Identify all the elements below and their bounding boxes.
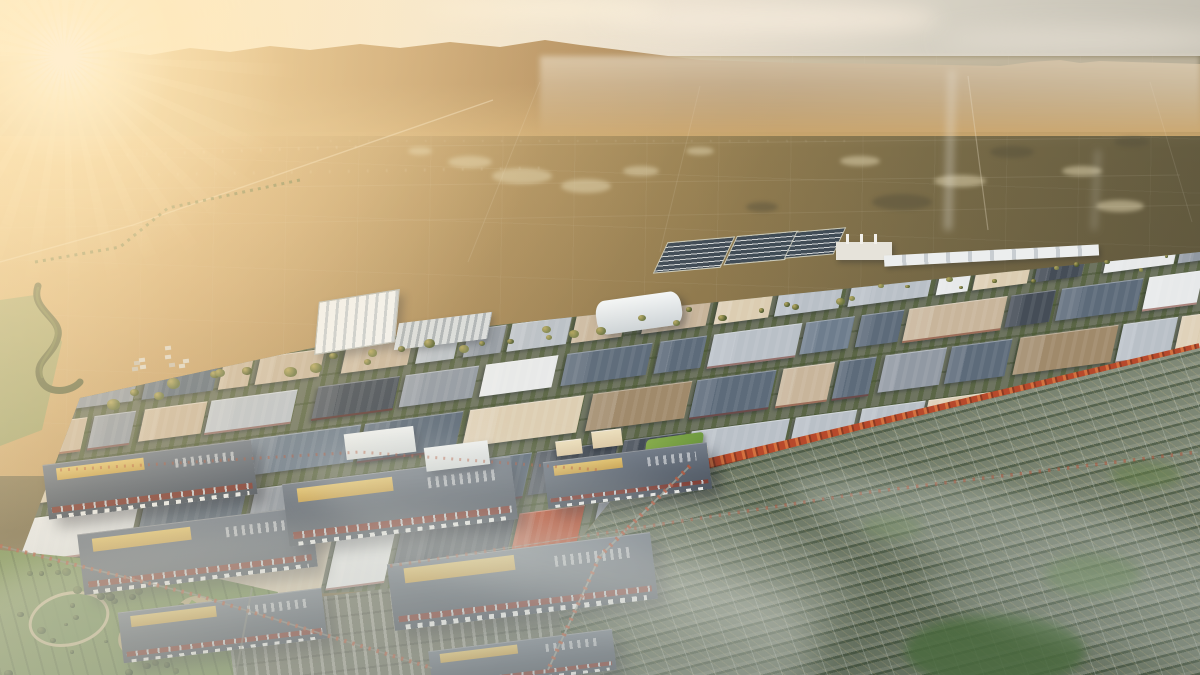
warehouse-roof	[77, 447, 188, 498]
warehouse-roof	[462, 395, 585, 447]
warehouse-roof	[1142, 270, 1200, 311]
baseball-field	[173, 592, 218, 630]
warehouse-roof	[943, 339, 1012, 384]
warehouse-roof	[390, 514, 515, 580]
warehouse-roof	[1055, 278, 1143, 321]
neighborhood-park	[862, 515, 922, 539]
warehouse-roof	[585, 381, 692, 431]
warehouse-roof	[527, 441, 618, 495]
warehouse-roof	[321, 469, 404, 524]
warehouse-roof	[87, 411, 136, 451]
warehouse-roof	[854, 310, 904, 348]
warehouse-roof	[560, 343, 653, 387]
warehouse-roof	[245, 479, 326, 534]
aerial-city-rendering	[0, 0, 1200, 675]
running-track	[23, 583, 116, 655]
warehouse-roof	[137, 401, 207, 441]
warehouse-roof	[1004, 290, 1056, 328]
smokestack	[860, 234, 863, 244]
horizon-haze	[540, 56, 1200, 136]
warehouse-roof	[204, 389, 298, 435]
warehouse-roof	[479, 355, 559, 397]
warehouse-roof	[240, 425, 360, 477]
neighborhood-park	[905, 615, 1085, 675]
neighborhood-park	[1110, 462, 1182, 488]
warehouse-roof	[186, 440, 245, 484]
warehouse-roof	[877, 347, 947, 393]
warehouse-roof	[311, 376, 400, 421]
warehouse-roof	[799, 316, 856, 355]
warehouse-roof	[902, 296, 1007, 343]
sun	[44, 36, 84, 76]
warehouse-roof	[654, 335, 707, 373]
warehouse-roof	[706, 323, 803, 369]
baseball-field	[115, 614, 173, 662]
smokestack	[846, 234, 849, 244]
warehouse-roof	[775, 362, 835, 408]
warehouse-roof	[831, 357, 876, 401]
smokestack	[874, 234, 877, 244]
warehouse-roof	[399, 366, 479, 408]
neighborhood-park	[1045, 555, 1140, 595]
warehouse-roof	[689, 370, 777, 420]
warehouse-roof	[325, 530, 396, 591]
warehouse-roof	[135, 490, 247, 549]
